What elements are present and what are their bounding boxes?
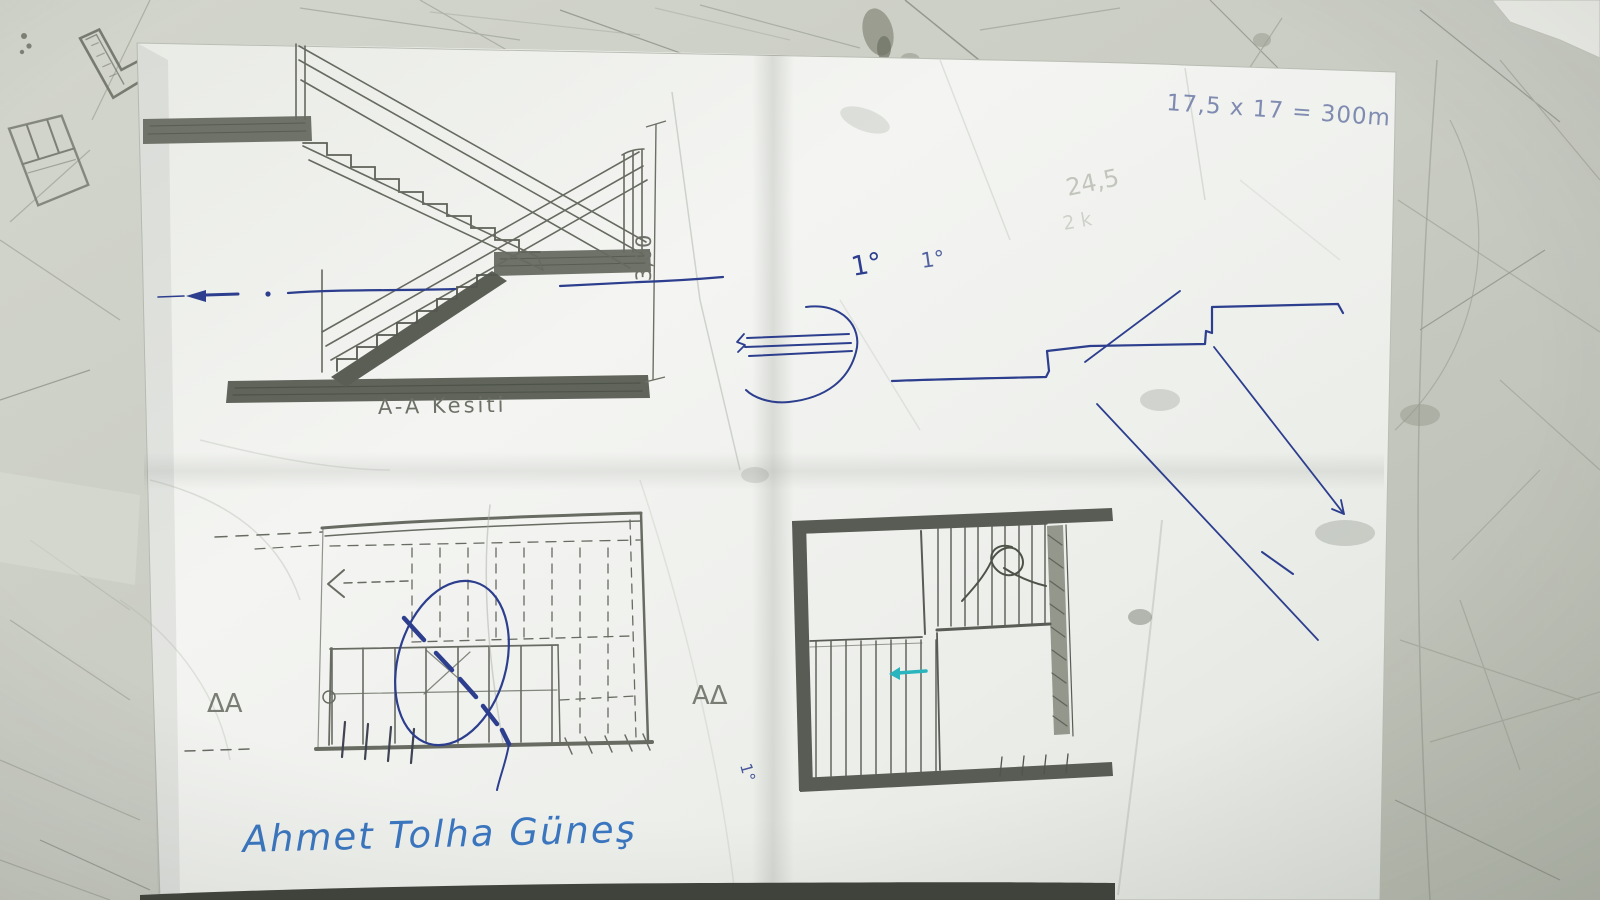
- photo-vignette: [0, 0, 1600, 900]
- photo-canvas: 3,00 1° 1° 1°: [0, 0, 1600, 900]
- photo-svg: 3,00 1° 1° 1°: [0, 0, 1600, 900]
